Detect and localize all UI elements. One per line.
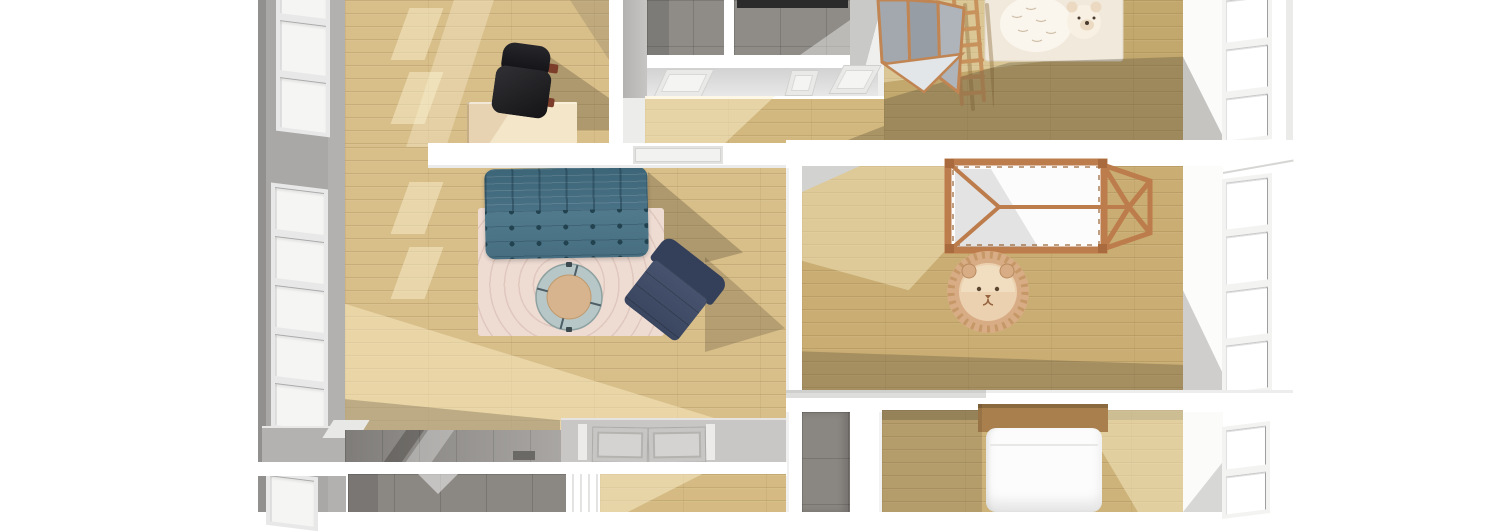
sofa-seat [485,209,649,260]
sofa [484,167,649,260]
wall-face-light [623,98,647,147]
entry-door-panel [592,427,649,464]
folding-screen [874,0,968,100]
sunlight-patch [645,96,775,145]
window-pane [275,236,324,284]
wall-vertical-central [786,147,802,512]
window-pane [1226,471,1266,514]
window-pane [280,0,326,19]
floor-plan-canvas [0,0,1504,512]
window-pane [280,77,326,133]
table-handle [566,262,572,267]
window-pane [280,20,326,76]
window-pane [275,187,324,235]
window-pane [1226,177,1268,229]
window-pane [270,475,314,526]
window-right-bottom [1222,421,1270,519]
window-pane [275,383,324,431]
door-frame-strip [706,424,715,460]
room-lower [600,474,786,512]
room-office [345,0,609,147]
bear-ear [1067,2,1078,13]
coffee-table [534,262,604,332]
counter-dark-strip [737,0,848,8]
window-pane [275,334,324,382]
bear-eye [1093,17,1096,20]
armchair-shadow [705,257,785,352]
sofa-backrest [484,167,648,214]
corner-shadow [1183,0,1223,142]
wall-face-right-1 [1183,0,1223,142]
door-mat [513,451,535,460]
room-bathroom-c [348,474,566,512]
table-wood-top [547,275,591,319]
wall-pillar [724,0,734,55]
window-pane [1226,44,1268,91]
bed-fold-line [990,444,1098,446]
lion-eye [995,287,999,291]
lion-eye [977,287,981,291]
tile-shadow [348,474,378,512]
bear-ear [1091,2,1102,13]
window-left-top [276,0,330,137]
window-pane [1226,426,1266,469]
lion-ear [1000,264,1014,278]
room-hallway-upper [645,96,884,145]
room-living [345,147,786,432]
corner-shadow [1183,166,1223,392]
wall-face-shaded [623,0,647,98]
corner-shadow [1183,440,1223,512]
bed-mattress [986,428,1102,512]
tile-highlight [800,20,850,55]
window-pane [275,285,324,333]
corridor-lower [802,412,850,512]
bear-rug [984,0,1124,62]
canopy-bed [943,157,1158,255]
window-right-middle [1222,173,1272,397]
floor-shadow-left [882,410,982,512]
wall-office-right [609,0,623,147]
table-handle [566,327,572,332]
wall-shadow [570,0,609,60]
screen-panel [938,2,964,92]
bear-nose [1085,21,1089,25]
bear-eye [1078,17,1081,20]
sunlight-patch [391,182,444,234]
window-pane [1226,340,1268,392]
wall-face-right-3 [1183,412,1223,512]
wall-corridor-right [850,412,882,512]
door-slab-on-wall [633,146,723,164]
lion-rug [945,249,1031,335]
room-entry [561,418,786,464]
wall-face-right-2 [1183,166,1223,392]
room-hallway [345,430,561,462]
entry-door-panel [648,426,707,463]
sunlight-patch [600,474,786,512]
wall-top-shading [786,390,986,398]
sunlight-patch [391,8,444,60]
office-chair [485,40,561,122]
wall-door-edge [566,474,600,512]
office-chair-seat [490,64,552,119]
wall-bathroom-bottom [647,55,850,68]
window-left-middle [271,183,328,436]
window-pane [1226,286,1268,338]
window-right-top [1222,0,1272,145]
tile-shadow [647,0,669,55]
wall-office-living [428,143,790,168]
window-pane [1226,93,1268,140]
door-frame-strip [578,424,587,460]
sunlight-patch [391,247,444,299]
exterior-edge-right [1286,0,1293,142]
lion-ear [962,264,976,278]
window-pane [1226,0,1268,43]
room-bathroom-b [734,0,850,55]
window-left-bottom [266,471,318,531]
room-bathroom-a [647,0,724,55]
tile-highlight [418,474,458,494]
window-pane [1226,232,1268,284]
